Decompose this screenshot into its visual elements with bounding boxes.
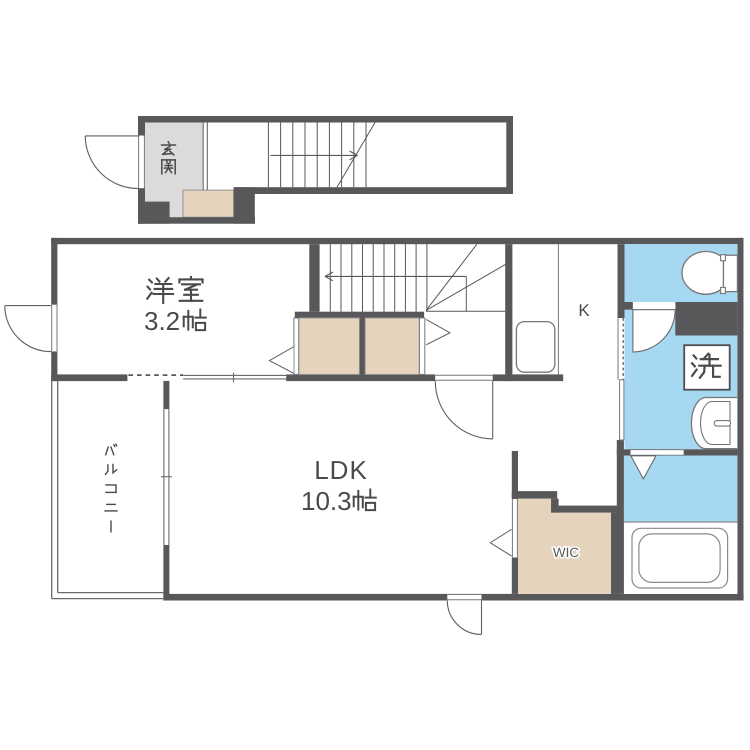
- svg-text:WIC: WIC: [553, 545, 579, 560]
- svg-text:LDK: LDK: [314, 455, 368, 485]
- svg-text:3.2: 3.2: [144, 306, 180, 336]
- svg-text:K: K: [578, 301, 590, 320]
- svg-text:10.3: 10.3: [301, 486, 352, 516]
